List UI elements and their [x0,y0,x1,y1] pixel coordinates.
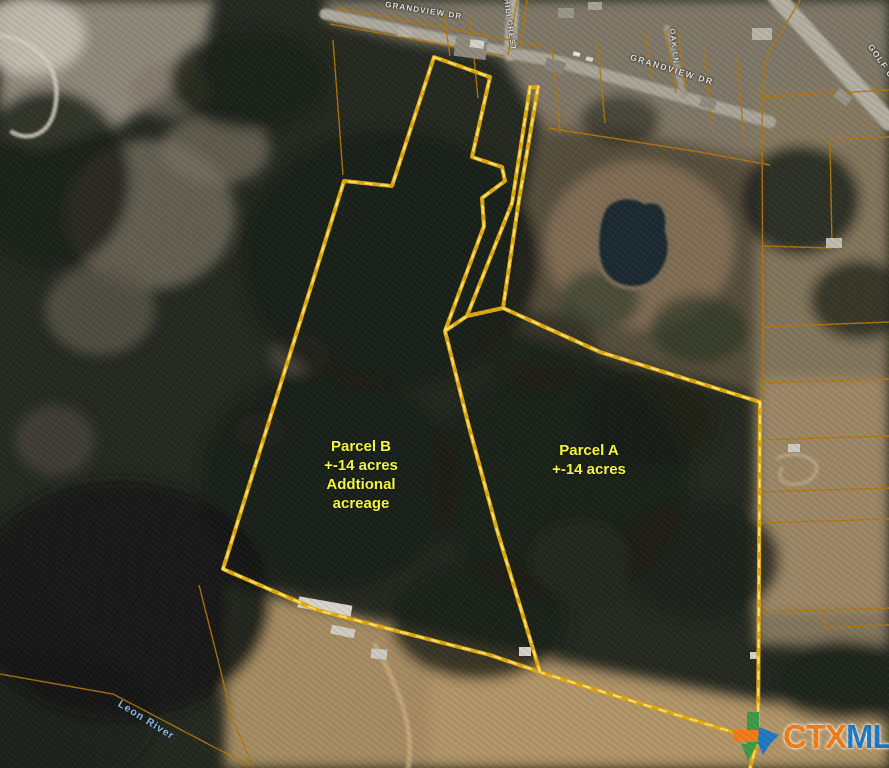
aerial-map: GRANDVIEW DR HILLCREST OAK LN GRANDVIEW … [0,0,889,768]
vignette-overlay [0,0,889,768]
